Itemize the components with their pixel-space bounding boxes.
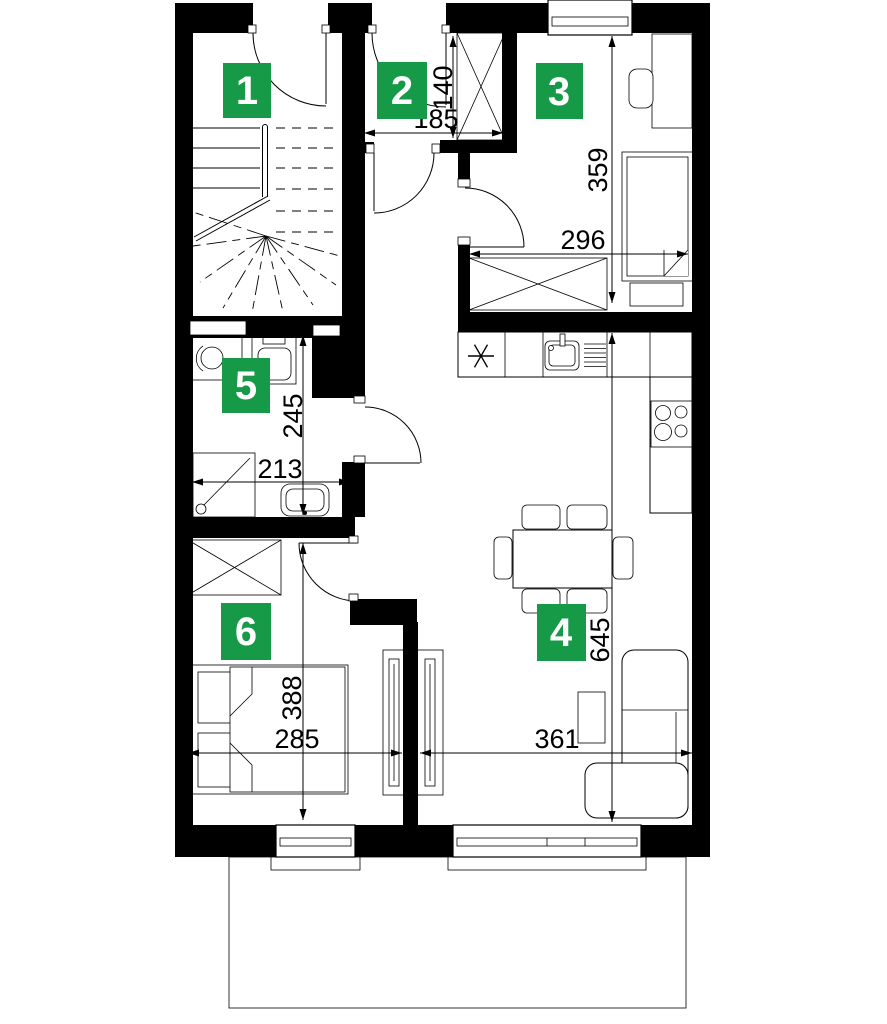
room-number: 6 bbox=[235, 610, 257, 654]
bench-icon bbox=[630, 283, 683, 306]
room-label-5: 5 bbox=[222, 358, 270, 413]
room-number: 5 bbox=[235, 364, 257, 408]
door-bathroom bbox=[354, 396, 421, 463]
bed-icon-room3 bbox=[622, 152, 693, 306]
room-number: 3 bbox=[548, 70, 570, 114]
room-number: 4 bbox=[550, 611, 573, 655]
hob-icon bbox=[651, 401, 692, 447]
nightstand-icon bbox=[198, 733, 233, 787]
sink-icon-bath bbox=[281, 484, 329, 516]
room-label-1: 1 bbox=[223, 63, 271, 118]
wall-niche bbox=[313, 325, 340, 336]
bed-icon-room6 bbox=[192, 665, 348, 794]
room-label-2: 2 bbox=[377, 62, 427, 119]
wardrobe-icon-room3 bbox=[469, 258, 607, 310]
wardrobe-icon-hall bbox=[457, 33, 505, 140]
door-room6 bbox=[299, 536, 358, 601]
dimension-label: 388 bbox=[277, 675, 307, 720]
dimension-label: 245 bbox=[278, 393, 308, 438]
side-table-icon bbox=[578, 692, 605, 743]
stair-handrail bbox=[263, 125, 268, 198]
room-label-6: 6 bbox=[221, 603, 271, 660]
dimension-label: 359 bbox=[583, 147, 613, 192]
dishwasher-icon bbox=[468, 345, 494, 368]
window-room6 bbox=[271, 825, 360, 870]
room-label-4: 4 bbox=[537, 604, 586, 661]
sink-icon-kitchen bbox=[545, 334, 579, 370]
stair-winders bbox=[193, 212, 340, 313]
floor-plan: 140 185 359 296 245 213 388 285 361 bbox=[0, 0, 887, 1024]
dimension-label: 361 bbox=[534, 724, 579, 754]
wall-niche bbox=[190, 321, 246, 335]
kitchen-counter bbox=[458, 332, 692, 513]
dimension-label: 213 bbox=[257, 454, 302, 484]
staircase bbox=[193, 125, 340, 314]
wardrobe-icon-room6 bbox=[188, 540, 281, 595]
dimension-label: 285 bbox=[274, 724, 319, 754]
floor-plan-page: 140 185 359 296 245 213 388 285 361 bbox=[0, 0, 887, 1024]
window-room3 bbox=[548, 0, 632, 35]
desk-icon bbox=[629, 34, 692, 128]
dimension-label: 645 bbox=[585, 617, 615, 662]
nightstand-icon bbox=[198, 672, 233, 723]
terrace-outline bbox=[229, 857, 686, 1008]
room-number: 2 bbox=[391, 69, 413, 113]
dish-drainer-icon bbox=[584, 344, 606, 367]
room-number: 1 bbox=[236, 69, 258, 113]
door-room3 bbox=[458, 179, 524, 247]
dimension-label: 296 bbox=[560, 225, 605, 255]
room-label-3: 3 bbox=[536, 63, 583, 119]
door-hall-to-living bbox=[366, 144, 440, 213]
terrace-door-window bbox=[448, 825, 646, 870]
